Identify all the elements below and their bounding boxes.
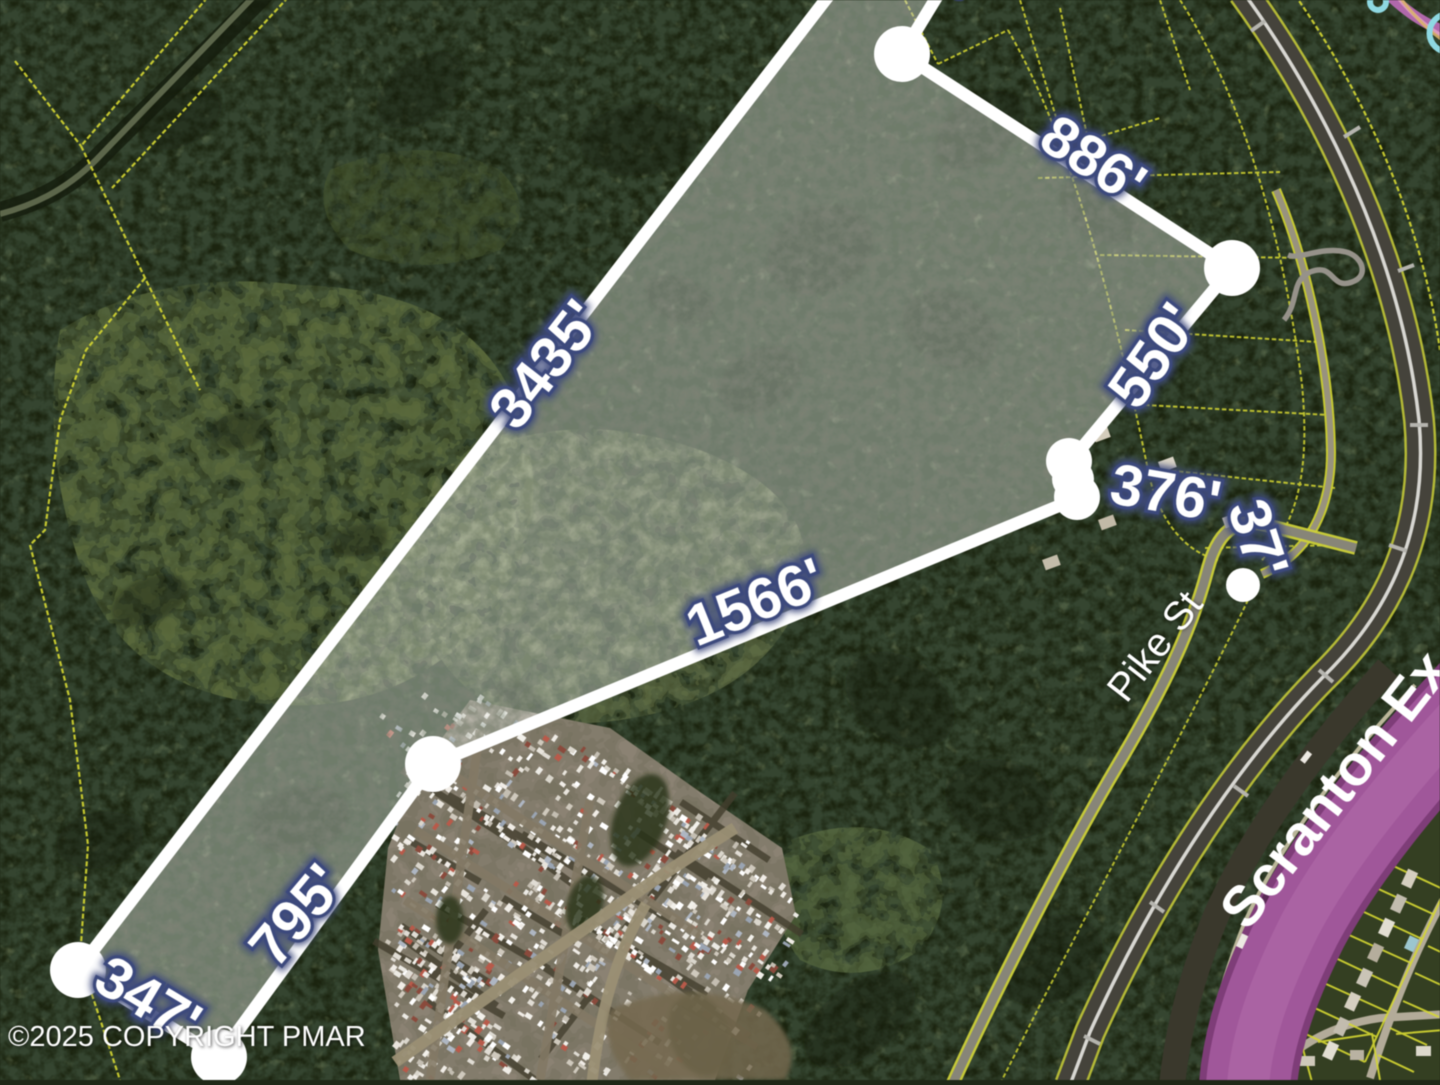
svg-text:©2025 COPYRIGHT PMAR: ©2025 COPYRIGHT PMAR [8,1021,366,1053]
